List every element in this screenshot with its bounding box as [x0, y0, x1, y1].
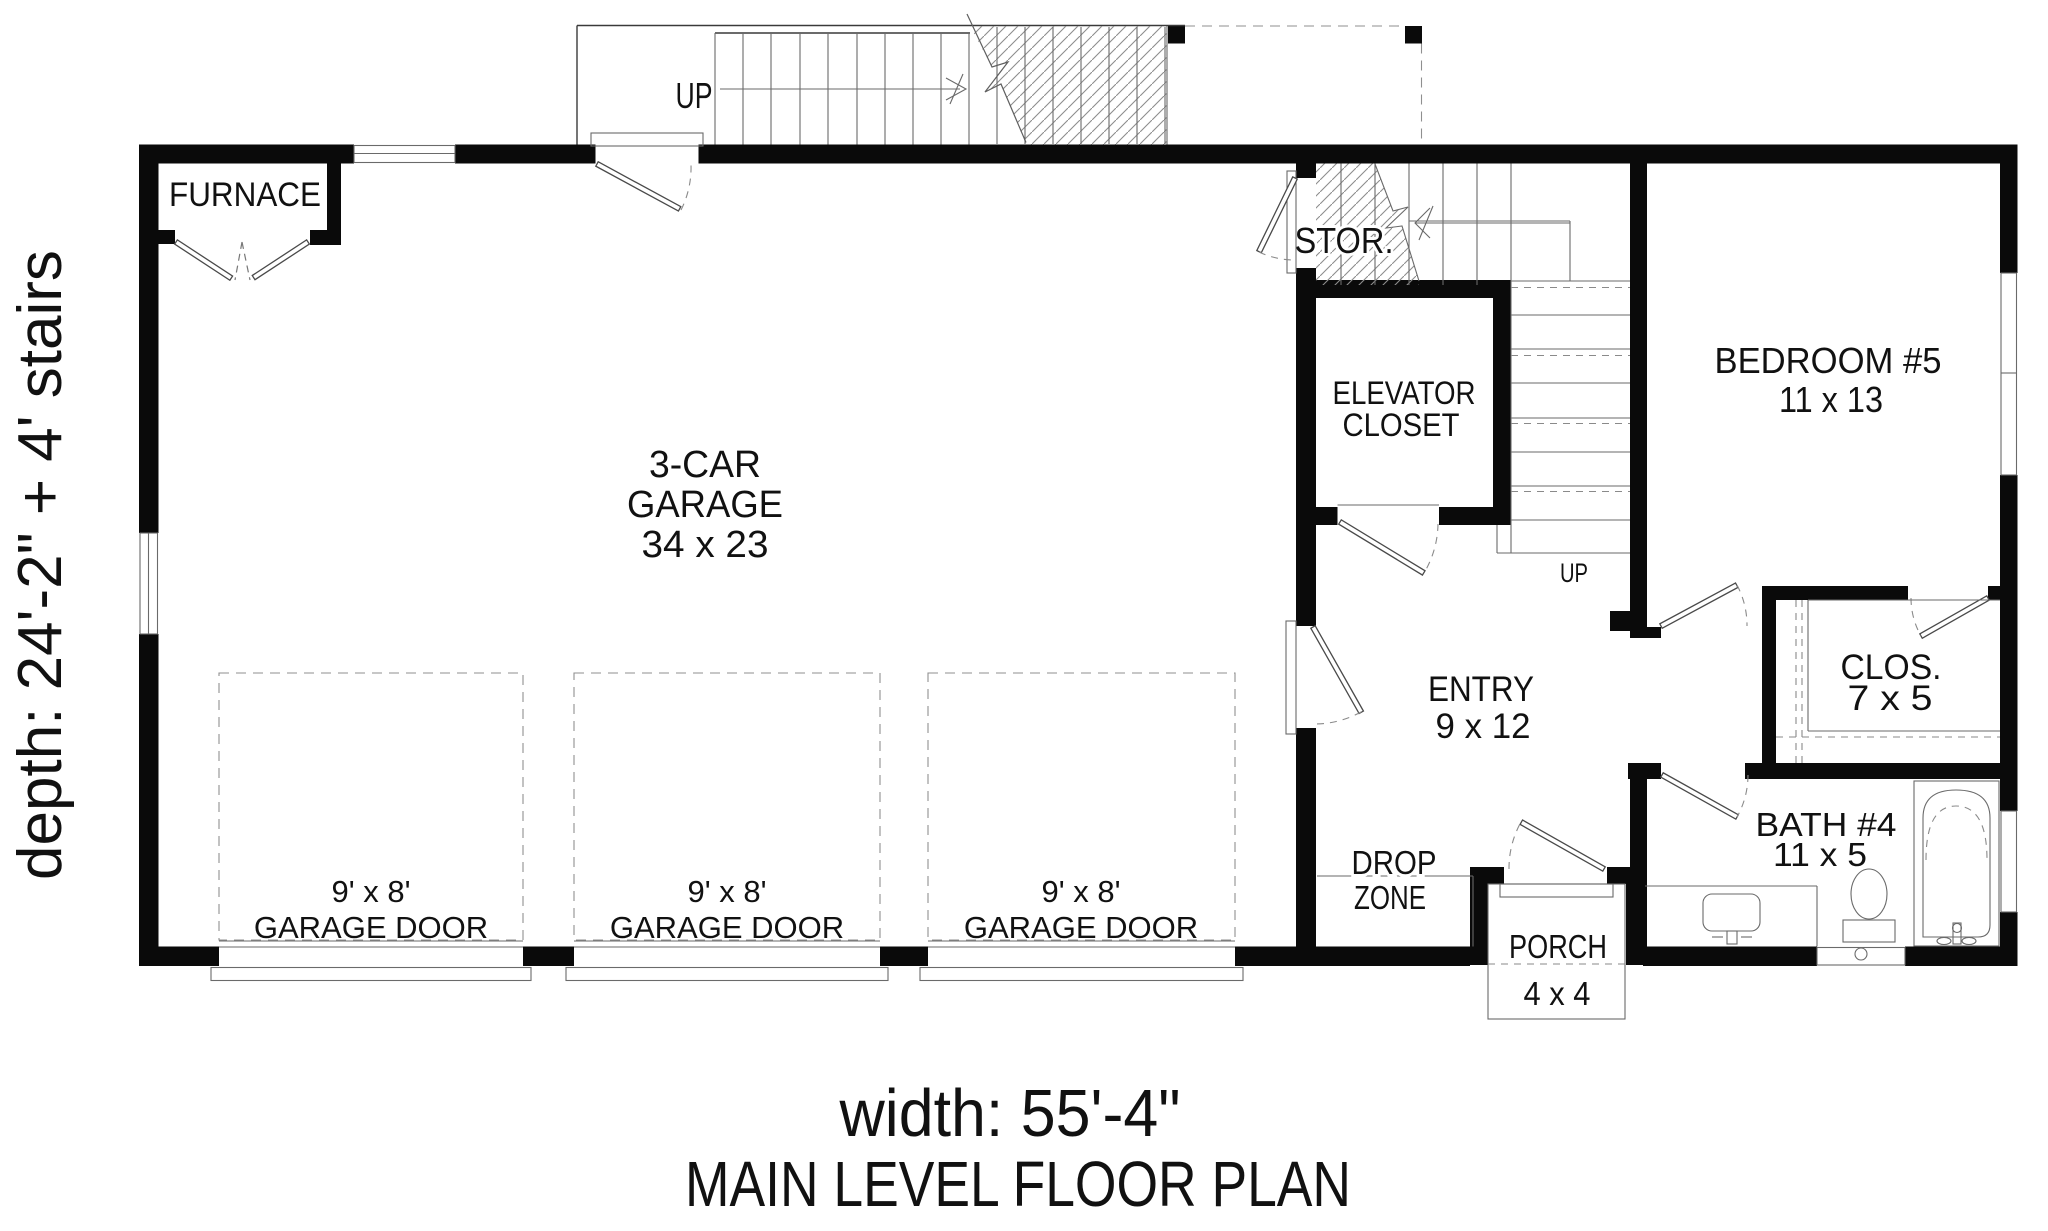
svg-text:GARAGE DOOR: GARAGE DOOR — [610, 910, 844, 945]
svg-text:ZONE: ZONE — [1354, 879, 1426, 916]
svg-text:FURNACE: FURNACE — [169, 176, 321, 214]
svg-text:GARAGE: GARAGE — [627, 484, 783, 526]
svg-text:PORCH: PORCH — [1509, 928, 1607, 965]
svg-text:ENTRY: ENTRY — [1428, 670, 1534, 709]
svg-text:width: 55'-4": width: 55'-4" — [839, 1076, 1181, 1151]
svg-text:STOR.: STOR. — [1295, 220, 1394, 261]
svg-text:GARAGE DOOR: GARAGE DOOR — [254, 910, 488, 945]
svg-text:4 x 4: 4 x 4 — [1524, 975, 1591, 1012]
svg-text:UP: UP — [676, 75, 713, 116]
svg-text:9 x 12: 9 x 12 — [1436, 707, 1531, 746]
svg-text:11 x 13: 11 x 13 — [1779, 379, 1883, 420]
svg-text:GARAGE DOOR: GARAGE DOOR — [964, 910, 1198, 945]
svg-text:9' x 8': 9' x 8' — [687, 874, 766, 909]
svg-text:depth: 24'-2" + 4' stairs: depth: 24'-2" + 4' stairs — [6, 250, 75, 880]
svg-text:ELEVATOR: ELEVATOR — [1333, 375, 1476, 411]
svg-text:7 x 5: 7 x 5 — [1848, 679, 1933, 718]
svg-text:DROP: DROP — [1352, 844, 1437, 881]
svg-text:9' x 8': 9' x 8' — [1041, 874, 1120, 909]
svg-text:3-CAR: 3-CAR — [649, 444, 761, 486]
svg-text:11 x 5: 11 x 5 — [1773, 836, 1867, 873]
svg-text:MAIN LEVEL FLOOR PLAN: MAIN LEVEL FLOOR PLAN — [685, 1148, 1351, 1220]
svg-text:34 x 23: 34 x 23 — [642, 524, 769, 566]
svg-text:UP: UP — [1560, 558, 1588, 588]
svg-text:9' x 8': 9' x 8' — [331, 874, 410, 909]
svg-text:BEDROOM #5: BEDROOM #5 — [1715, 340, 1942, 381]
svg-text:CLOSET: CLOSET — [1343, 407, 1460, 443]
